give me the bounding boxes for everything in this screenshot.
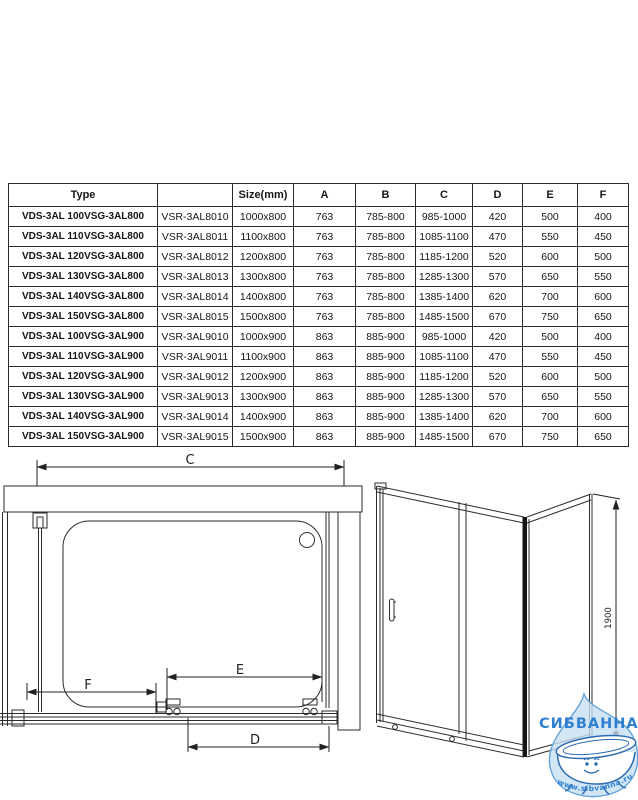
- cell-type: VDS-3AL 140 VSG-3AL800: [9, 287, 158, 307]
- cell-d: 570: [473, 387, 523, 407]
- type-secondary: VSG-3AL800: [84, 291, 144, 302]
- cell-a: 863: [294, 347, 356, 367]
- type-primary: VDS-3AL 110: [22, 231, 84, 242]
- type-primary: VDS-3AL 150: [22, 431, 84, 442]
- dimension-c: C: [37, 453, 344, 486]
- header-d: D: [473, 184, 523, 207]
- cell-b: 785-800: [356, 207, 416, 227]
- cell-f: 400: [578, 207, 629, 227]
- dim-label-c: C: [185, 453, 194, 468]
- corner-post: [523, 517, 528, 757]
- cell-e: 600: [523, 247, 578, 267]
- shower-tray: [63, 521, 322, 707]
- cell-size: 1400x900: [233, 407, 294, 427]
- cell-type: VDS-3AL 110 VSG-3AL800: [9, 227, 158, 247]
- type-primary: VDS-3AL 140: [22, 291, 84, 302]
- cell-e: 500: [523, 327, 578, 347]
- cell-f: 450: [578, 347, 629, 367]
- cell-e: 500: [523, 207, 578, 227]
- table-row: VDS-3AL 120 VSG-3AL900 VSR-3AL9012 1200x…: [9, 367, 629, 387]
- cell-b: 885-900: [356, 367, 416, 387]
- cell-c: 1185-1200: [416, 367, 473, 387]
- cell-f: 450: [578, 227, 629, 247]
- type-secondary: VSG-3AL800: [84, 231, 144, 242]
- cell-model: VSR-3AL9010: [158, 327, 233, 347]
- cell-b: 885-900: [356, 407, 416, 427]
- cell-d: 420: [473, 327, 523, 347]
- cell-model: VSR-3AL8011: [158, 227, 233, 247]
- technical-drawing: C F E D: [0, 448, 638, 800]
- cell-e: 750: [523, 427, 578, 447]
- cell-a: 863: [294, 327, 356, 347]
- cell-a: 763: [294, 307, 356, 327]
- header-size: Size(mm): [233, 184, 294, 207]
- table-row: VDS-3AL 100 VSG-3AL800 VSR-3AL8010 1000x…: [9, 207, 629, 227]
- cell-size: 1500x900: [233, 427, 294, 447]
- cell-size: 1400x800: [233, 287, 294, 307]
- cell-d: 670: [473, 307, 523, 327]
- cell-b: 885-900: [356, 327, 416, 347]
- cell-model: VSR-3AL8010: [158, 207, 233, 227]
- type-primary: VDS-3AL 130: [22, 391, 84, 402]
- cell-size: 1100x800: [233, 227, 294, 247]
- table-header-row: Type Size(mm) A B C D E F: [9, 184, 629, 207]
- table-row: VDS-3AL 150 VSG-3AL800 VSR-3AL8015 1500x…: [9, 307, 629, 327]
- back-wall-hatch: [4, 486, 362, 512]
- type-primary: VDS-3AL 100: [22, 211, 84, 222]
- cell-size: 1100x900: [233, 347, 294, 367]
- dim-label-f: F: [84, 678, 91, 693]
- type-secondary: VSG-3AL800: [84, 211, 144, 222]
- cell-f: 650: [578, 427, 629, 447]
- cell-e: 700: [523, 407, 578, 427]
- cell-d: 420: [473, 207, 523, 227]
- dim-label-e: E: [236, 663, 244, 678]
- cell-type: VDS-3AL 120 VSG-3AL900: [9, 367, 158, 387]
- table-row: VDS-3AL 110 VSG-3AL800 VSR-3AL8011 1100x…: [9, 227, 629, 247]
- cell-model: VSR-3AL8014: [158, 287, 233, 307]
- cell-model: VSR-3AL8013: [158, 267, 233, 287]
- cell-b: 885-900: [356, 387, 416, 407]
- type-primary: VDS-3AL 120: [22, 251, 84, 262]
- drain-hole: [300, 533, 315, 548]
- type-primary: VDS-3AL 110: [22, 351, 84, 362]
- type-primary: VDS-3AL 130: [22, 271, 84, 282]
- cell-model: VSR-3AL9011: [158, 347, 233, 367]
- dimension-f: F: [27, 678, 156, 713]
- cell-a: 763: [294, 227, 356, 247]
- cell-d: 470: [473, 347, 523, 367]
- cell-type: VDS-3AL 150 VSG-3AL900: [9, 427, 158, 447]
- table-row: VDS-3AL 110 VSG-3AL900 VSR-3AL9011 1100x…: [9, 347, 629, 367]
- cell-b: 885-900: [356, 427, 416, 447]
- table-row: VDS-3AL 130 VSG-3AL800 VSR-3AL8013 1300x…: [9, 267, 629, 287]
- cell-d: 520: [473, 247, 523, 267]
- watermark: СИБВАННА www.sibvanna.ru: [539, 694, 638, 797]
- cell-a: 763: [294, 247, 356, 267]
- cell-d: 470: [473, 227, 523, 247]
- cell-b: 785-800: [356, 247, 416, 267]
- cell-type: VDS-3AL 100 VSG-3AL800: [9, 207, 158, 227]
- cell-e: 550: [523, 227, 578, 247]
- cell-c: 985-1000: [416, 327, 473, 347]
- dim-label-d: D: [250, 733, 260, 748]
- plan-view: C F E D: [0, 453, 362, 752]
- type-secondary: VSG-3AL800: [84, 311, 144, 322]
- cell-c: 1285-1300: [416, 387, 473, 407]
- watermark-brand: СИБВАННА: [539, 716, 638, 732]
- cell-f: 550: [578, 267, 629, 287]
- type-secondary: VSG-3AL900: [84, 371, 144, 382]
- type-secondary: VSG-3AL900: [84, 351, 144, 362]
- cell-a: 763: [294, 287, 356, 307]
- cell-c: 1085-1100: [416, 227, 473, 247]
- cell-size: 1300x800: [233, 267, 294, 287]
- cell-type: VDS-3AL 130 VSG-3AL800: [9, 267, 158, 287]
- table-row: VDS-3AL 120 VSG-3AL800 VSR-3AL8012 1200x…: [9, 247, 629, 267]
- wall-profile-bracket: [33, 513, 47, 528]
- cell-c: 1485-1500: [416, 307, 473, 327]
- cell-model: VSR-3AL8015: [158, 307, 233, 327]
- cell-size: 1000x800: [233, 207, 294, 227]
- cell-e: 700: [523, 287, 578, 307]
- dim-label-height: 1900: [604, 607, 614, 629]
- cell-size: 1200x800: [233, 247, 294, 267]
- cell-a: 763: [294, 267, 356, 287]
- cell-b: 785-800: [356, 267, 416, 287]
- cell-f: 500: [578, 367, 629, 387]
- dimension-d: D: [188, 718, 329, 752]
- cell-f: 400: [578, 327, 629, 347]
- cell-type: VDS-3AL 130 VSG-3AL900: [9, 387, 158, 407]
- cell-f: 500: [578, 247, 629, 267]
- type-primary: VDS-3AL 120: [22, 371, 84, 382]
- cell-c: 1385-1400: [416, 407, 473, 427]
- dimension-e: E: [167, 663, 322, 710]
- cell-size: 1000x900: [233, 327, 294, 347]
- cell-size: 1500x800: [233, 307, 294, 327]
- spec-sheet-page: Type Size(mm) A B C D E F VDS-3AL 100 VS…: [0, 0, 638, 800]
- cell-model: VSR-3AL9013: [158, 387, 233, 407]
- type-secondary: VSG-3AL900: [84, 391, 144, 402]
- table-row: VDS-3AL 140 VSG-3AL900 VSR-3AL9014 1400x…: [9, 407, 629, 427]
- roller-dot: [450, 737, 455, 742]
- table-row: VDS-3AL 130 VSG-3AL900 VSR-3AL9013 1300x…: [9, 387, 629, 407]
- cell-f: 600: [578, 407, 629, 427]
- cell-c: 1385-1400: [416, 287, 473, 307]
- cell-b: 785-800: [356, 287, 416, 307]
- type-primary: VDS-3AL 100: [22, 331, 84, 342]
- cell-a: 863: [294, 407, 356, 427]
- type-secondary: VSG-3AL800: [84, 271, 144, 282]
- type-primary: VDS-3AL 150: [22, 311, 84, 322]
- header-c: C: [416, 184, 473, 207]
- type-primary: VDS-3AL 140: [22, 411, 84, 422]
- cell-b: 885-900: [356, 347, 416, 367]
- dimension-height: 1900: [593, 494, 620, 744]
- type-secondary: VSG-3AL900: [84, 331, 144, 342]
- table-row: VDS-3AL 140 VSG-3AL800 VSR-3AL8014 1400x…: [9, 287, 629, 307]
- header-e: E: [523, 184, 578, 207]
- cell-model: VSR-3AL8012: [158, 247, 233, 267]
- table-row: VDS-3AL 150 VSG-3AL900 VSR-3AL9015 1500x…: [9, 427, 629, 447]
- cell-type: VDS-3AL 110 VSG-3AL900: [9, 347, 158, 367]
- cell-e: 650: [523, 267, 578, 287]
- header-a: A: [294, 184, 356, 207]
- cell-e: 650: [523, 387, 578, 407]
- cell-f: 550: [578, 387, 629, 407]
- type-secondary: VSG-3AL900: [84, 411, 144, 422]
- cell-type: VDS-3AL 100 VSG-3AL900: [9, 327, 158, 347]
- door-handle: [390, 599, 397, 621]
- cell-model: VSR-3AL9012: [158, 367, 233, 387]
- cell-d: 670: [473, 427, 523, 447]
- cell-c: 985-1000: [416, 207, 473, 227]
- type-secondary: VSG-3AL900: [84, 431, 144, 442]
- cell-model: VSR-3AL9014: [158, 407, 233, 427]
- cell-e: 750: [523, 307, 578, 327]
- cell-model: VSR-3AL9015: [158, 427, 233, 447]
- cell-a: 863: [294, 367, 356, 387]
- cell-c: 1085-1100: [416, 347, 473, 367]
- cell-f: 600: [578, 287, 629, 307]
- table-row: VDS-3AL 100 VSG-3AL900 VSR-3AL9010 1000x…: [9, 327, 629, 347]
- cell-c: 1485-1500: [416, 427, 473, 447]
- cell-f: 650: [578, 307, 629, 327]
- cell-e: 600: [523, 367, 578, 387]
- cell-a: 863: [294, 387, 356, 407]
- cell-d: 620: [473, 287, 523, 307]
- cell-c: 1185-1200: [416, 247, 473, 267]
- cell-c: 1285-1300: [416, 267, 473, 287]
- cell-type: VDS-3AL 150 VSG-3AL800: [9, 307, 158, 327]
- cell-e: 550: [523, 347, 578, 367]
- type-secondary: VSG-3AL800: [84, 251, 144, 262]
- spec-table: Type Size(mm) A B C D E F VDS-3AL 100 VS…: [8, 183, 629, 447]
- header-f: F: [578, 184, 629, 207]
- cell-b: 785-800: [356, 227, 416, 247]
- cell-type: VDS-3AL 120 VSG-3AL800: [9, 247, 158, 267]
- roller-dot: [393, 725, 398, 730]
- cell-d: 570: [473, 267, 523, 287]
- cell-size: 1300x900: [233, 387, 294, 407]
- cell-a: 863: [294, 427, 356, 447]
- side-wall-hatch: [338, 512, 360, 730]
- cell-size: 1200x900: [233, 367, 294, 387]
- cell-d: 520: [473, 367, 523, 387]
- cell-d: 620: [473, 407, 523, 427]
- roller-right: [303, 699, 317, 715]
- header-type: Type: [9, 184, 158, 207]
- cell-type: VDS-3AL 140 VSG-3AL900: [9, 407, 158, 427]
- header-b: B: [356, 184, 416, 207]
- cell-a: 763: [294, 207, 356, 227]
- header-model: [158, 184, 233, 207]
- cell-b: 785-800: [356, 307, 416, 327]
